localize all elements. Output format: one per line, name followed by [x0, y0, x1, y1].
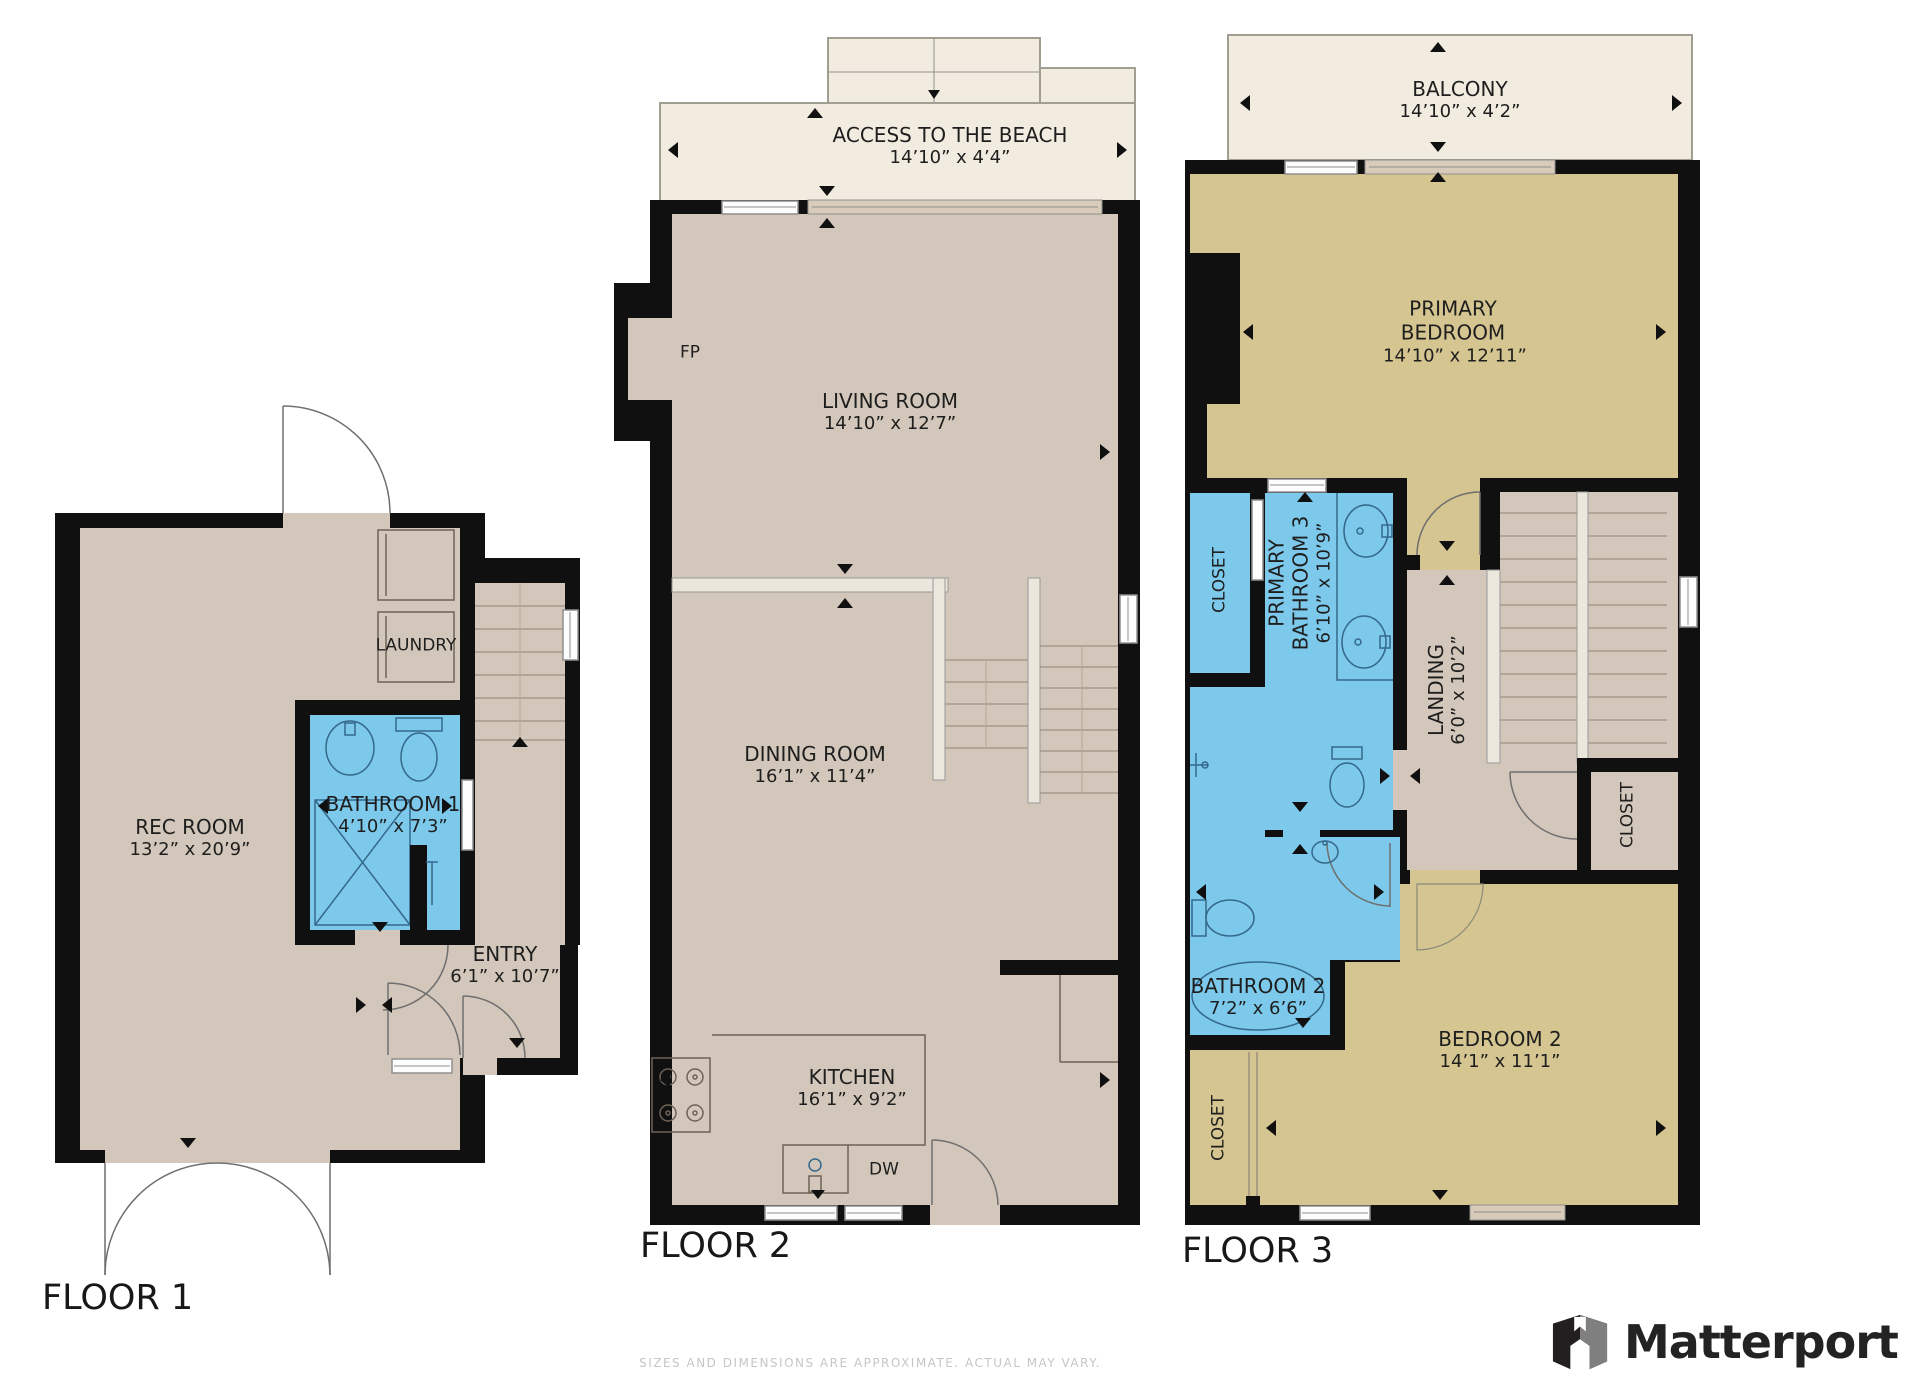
room-label-beach-access: ACCESS TO THE BEACH 14’10” x 4’4”: [833, 123, 1068, 169]
room-label-landing: LANDING 6’0” x 10’2”: [1424, 635, 1470, 744]
floor-2-label: FLOOR 2: [640, 1226, 791, 1266]
room-label-dishwasher: DW: [869, 1160, 899, 1181]
matterport-wordmark: Matterport: [1624, 1315, 1898, 1369]
floorplan-graphic: .wall{fill:#101010;} .taupe{fill:#d2c7ba…: [0, 0, 1920, 1396]
matterport-brand: Matterport: [1551, 1313, 1898, 1371]
room-label-laundry: LAUNDRY: [376, 636, 457, 657]
room-label-rec-room: REC ROOM 13’2” x 20’9”: [130, 815, 251, 861]
room-label-closet-bedroom-2: CLOSET: [1209, 1095, 1230, 1161]
room-label-bathroom-2: BATHROOM 2 7’2” x 6’6”: [1191, 974, 1326, 1020]
matterport-logo-icon: [1551, 1313, 1609, 1371]
room-label-primary-bedroom: PRIMARY BEDROOM 14’10” x 12’11”: [1383, 297, 1523, 368]
room-label-fireplace: FP: [680, 343, 700, 364]
floorplan-page: .wall{fill:#101010;} .taupe{fill:#d2c7ba…: [0, 0, 1920, 1396]
floor2-plan: [614, 38, 1140, 1225]
floor-1-label: FLOOR 1: [42, 1278, 193, 1318]
room-label-closet-primary: CLOSET: [1210, 547, 1231, 613]
room-label-bedroom-2: BEDROOM 2 14’1” x 11’1”: [1438, 1027, 1561, 1073]
room-label-kitchen: KITCHEN 16’1” x 9’2”: [797, 1065, 906, 1111]
room-label-bathroom-1: BATHROOM 1 4’10” x 7’3”: [326, 792, 461, 838]
disclaimer-text: SIZES AND DIMENSIONS ARE APPROXIMATE. AC…: [620, 1356, 1120, 1370]
room-label-closet-landing: CLOSET: [1618, 782, 1639, 848]
room-label-entry: ENTRY 6’1” x 10’7”: [450, 942, 559, 988]
room-label-living-room: LIVING ROOM 14’10” x 12’7”: [822, 389, 958, 435]
room-label-dining-room: DINING ROOM 16’1” x 11’4”: [744, 742, 886, 788]
room-label-balcony: BALCONY 14’10” x 4’2”: [1400, 77, 1521, 123]
room-label-primary-bathroom-3: PRIMARY BATHROOM 3 6’10” x 10’9”: [1265, 508, 1336, 658]
floor-3-label: FLOOR 3: [1182, 1231, 1333, 1271]
